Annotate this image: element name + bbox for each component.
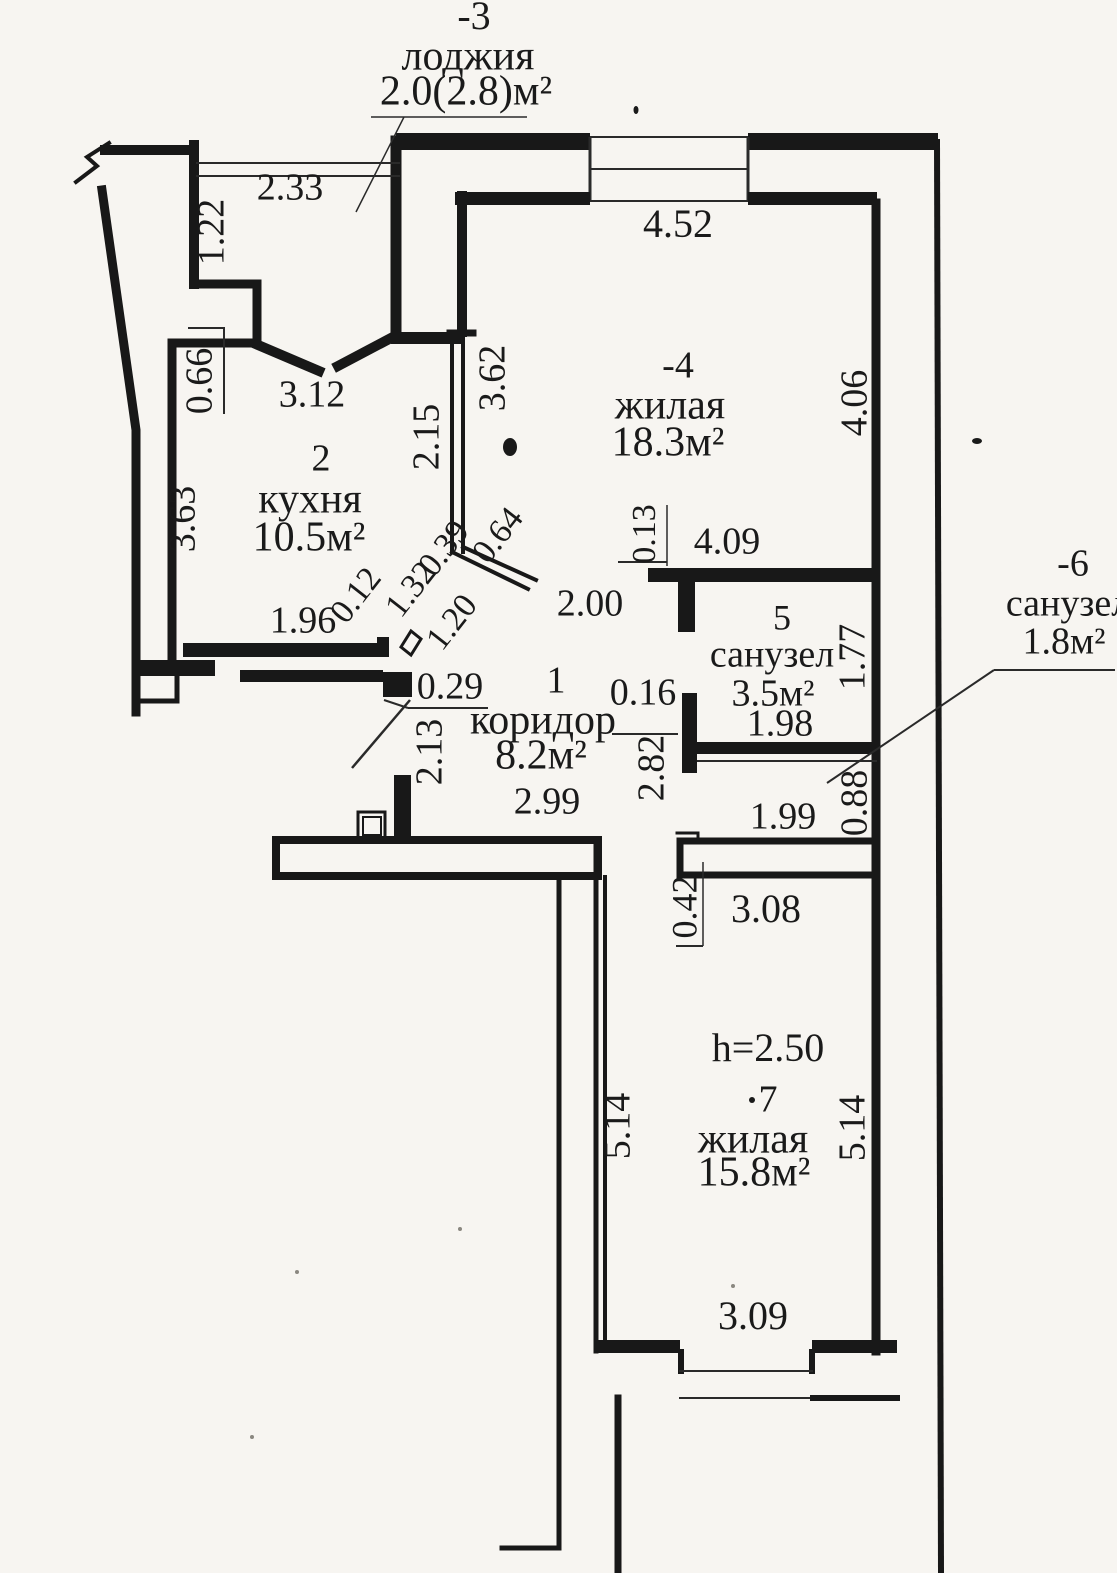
- dim-2-00: 2.00: [557, 583, 624, 625]
- room-loggia-area: 2.0(2.8)м²: [380, 69, 552, 115]
- room-loggia-number: -3: [457, 0, 490, 38]
- dim-5-14-left: 5.14: [597, 1093, 639, 1160]
- dim-4-09: 4.09: [694, 521, 761, 563]
- room-kitchen-number: 2: [312, 438, 331, 480]
- room-corridor-number: 1: [547, 660, 566, 702]
- room-kitchen-area: 10.5м²: [253, 515, 366, 561]
- dim-2-99: 2.99: [514, 781, 581, 823]
- room-living1-number: -4: [662, 345, 694, 387]
- dim-2-13: 2.13: [409, 719, 451, 786]
- dim-1-98: 1.98: [747, 703, 814, 745]
- dim-3-63: 3.63: [162, 486, 204, 553]
- dim-2-33: 2.33: [257, 167, 324, 209]
- dim-4-52: 4.52: [643, 201, 713, 246]
- dim-0-88: 0.88: [834, 770, 876, 837]
- dim-2-82: 2.82: [631, 735, 673, 802]
- dim-0-16: 0.16: [610, 672, 677, 714]
- entry-door-leaf: [352, 700, 410, 768]
- dim-3-62: 3.62: [472, 345, 514, 412]
- ceiling-height: h=2.50: [712, 1025, 825, 1070]
- living1-window: [590, 137, 748, 201]
- dim-1-22: 1.22: [191, 199, 233, 266]
- living2-window: [679, 1371, 813, 1398]
- dim-0-13: 0.13: [626, 504, 663, 564]
- room-living1-area: 18.3м²: [612, 420, 725, 466]
- room-bath1-name: санузел: [710, 634, 834, 676]
- dim-4-06: 4.06: [834, 370, 876, 437]
- dim-3-08: 3.08: [731, 886, 801, 931]
- room-living2-number: 7: [759, 1079, 778, 1121]
- dim-5-14-right: 5.14: [832, 1095, 874, 1162]
- room-bath1-number: 5: [773, 597, 791, 637]
- floor-plan-drawing: -3лоджия2.0(2.8)м²2.331.220.663.122кухня…: [0, 0, 1117, 1573]
- dim-2-15: 2.15: [406, 404, 448, 471]
- scanned-floor-plan-page: -3лоджия2.0(2.8)м²2.331.220.663.122кухня…: [0, 0, 1117, 1573]
- room-bath2-area: 1.8м²: [1023, 621, 1106, 663]
- dim-0-42: 0.42: [664, 876, 704, 939]
- dim-3-09: 3.09: [718, 1293, 788, 1338]
- dim-1-77: 1.77: [832, 624, 874, 691]
- dim-0-66: 0.66: [179, 348, 221, 415]
- dim-1-20: 1.20: [419, 588, 485, 658]
- dim-3-12: 3.12: [279, 374, 346, 416]
- room-living2-area: 15.8м²: [698, 1150, 811, 1196]
- room-corridor-area: 8.2м²: [495, 733, 587, 779]
- dim-1-99: 1.99: [750, 796, 817, 838]
- room-bath2-name: санузел: [1006, 583, 1117, 625]
- room-bath2-number: -6: [1057, 543, 1089, 585]
- dim-1-96: 1.96: [270, 600, 337, 642]
